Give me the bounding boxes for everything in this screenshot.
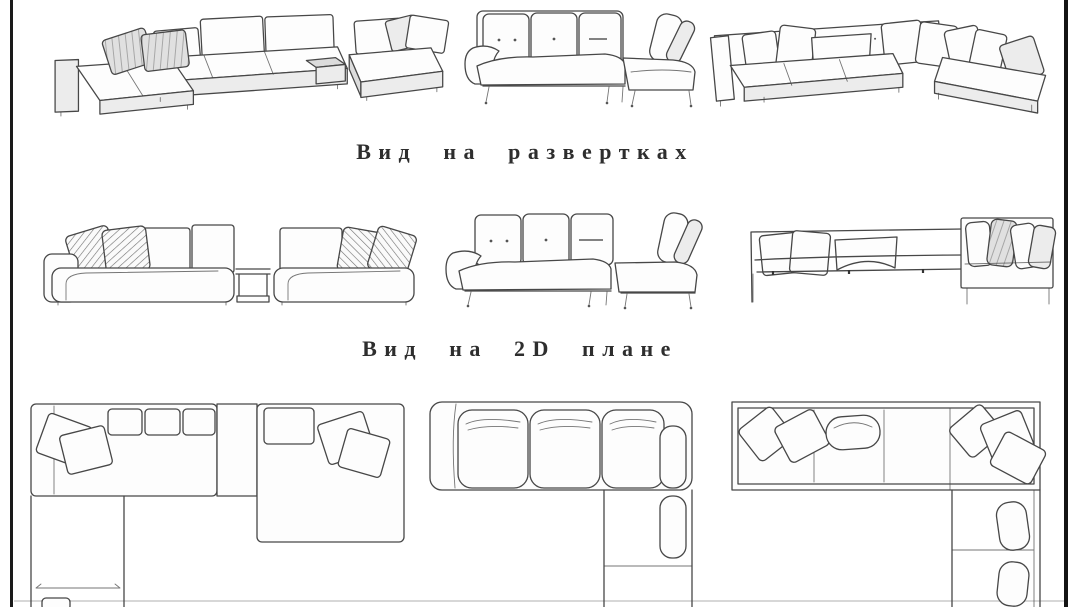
sofa-3-plan-drawing (726, 398, 1056, 607)
scanned-furniture-figure: Вид на развертках (0, 0, 1080, 607)
sofa-1-plan-drawing (28, 398, 408, 607)
sofa-1-elevation-drawing (40, 212, 420, 307)
sofa-2-perspective-drawing (463, 2, 703, 107)
sofa-1-perspective-drawing (40, 6, 450, 118)
caption-2d-plan: Вид на 2D плане (0, 336, 1080, 362)
page-frame-left (10, 0, 13, 607)
sofa-3-elevation-drawing (745, 212, 1060, 307)
sofa-3-perspective-drawing (703, 6, 1063, 120)
hatched-pillow (101, 225, 150, 274)
caption-elevations-text: Вид на развертках (356, 139, 694, 164)
caption-2d-plan-text: Вид на 2D плане (362, 336, 678, 361)
caption-elevations: Вид на развертках (0, 139, 1080, 165)
sofa-2-elevation-drawing (445, 207, 720, 307)
page-frame-right (1064, 0, 1068, 607)
sofa-2-plan-drawing (428, 398, 703, 607)
striped-pillow (141, 30, 190, 72)
